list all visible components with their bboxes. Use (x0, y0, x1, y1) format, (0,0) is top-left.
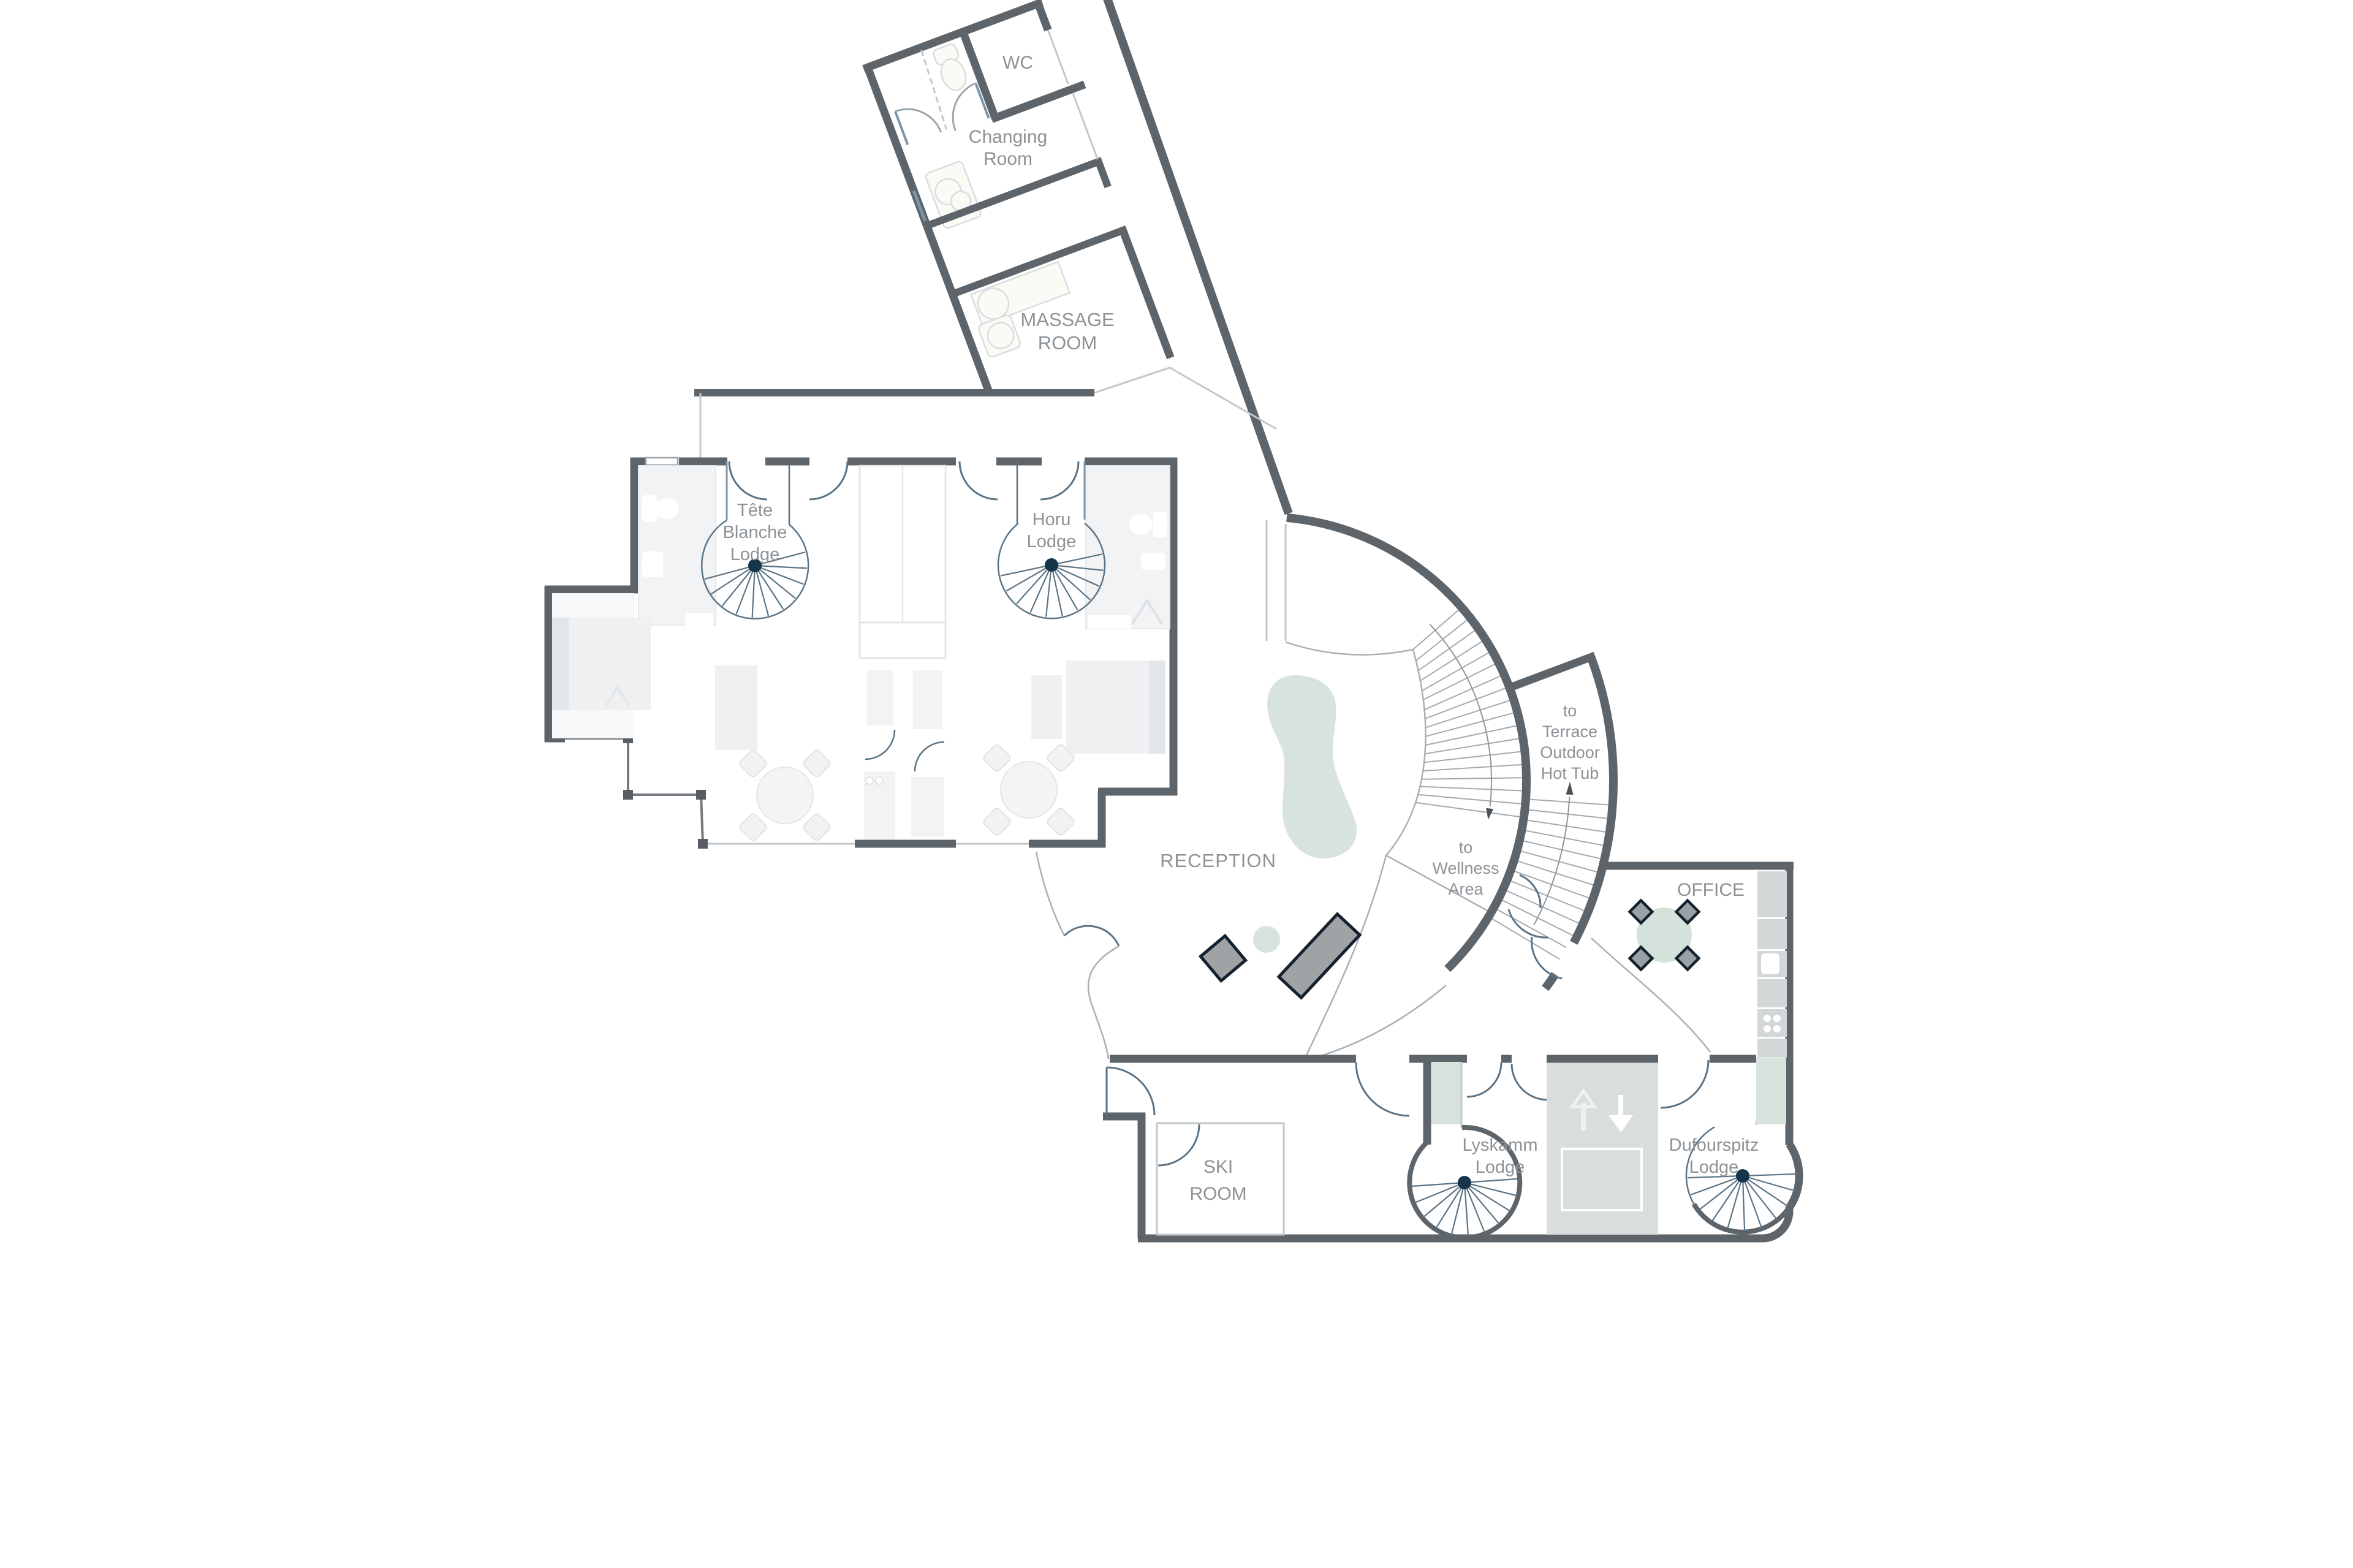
svg-text:Changing: Changing (969, 127, 1047, 147)
svg-text:Outdoor: Outdoor (1540, 743, 1600, 762)
svg-text:to: to (1563, 702, 1577, 720)
svg-text:Area: Area (1448, 880, 1483, 898)
svg-text:Tête: Tête (737, 501, 773, 520)
svg-text:Blanche: Blanche (723, 523, 787, 542)
svg-text:ROOM: ROOM (1038, 332, 1097, 354)
svg-text:Lodge: Lodge (1027, 532, 1077, 551)
svg-text:Room: Room (983, 149, 1033, 169)
svg-text:OFFICE: OFFICE (1677, 880, 1745, 900)
svg-text:Lodge: Lodge (1476, 1157, 1525, 1177)
svg-text:Horu: Horu (1033, 510, 1071, 529)
svg-text:WC: WC (1002, 53, 1033, 73)
svg-text:RECEPTION: RECEPTION (1160, 850, 1276, 871)
svg-text:to: to (1459, 838, 1473, 857)
svg-text:Lodge: Lodge (1689, 1157, 1739, 1177)
svg-text:ROOM: ROOM (1189, 1184, 1246, 1204)
svg-text:MASSAGE: MASSAGE (1020, 309, 1114, 330)
svg-text:Terrace: Terrace (1542, 722, 1597, 741)
svg-text:Lodge: Lodge (730, 545, 780, 564)
svg-text:SKI: SKI (1203, 1157, 1233, 1177)
svg-text:Dufourspitz: Dufourspitz (1669, 1135, 1759, 1155)
svg-text:Lyskamm: Lyskamm (1463, 1135, 1538, 1155)
svg-text:Hot Tub: Hot Tub (1541, 764, 1599, 782)
svg-text:Wellness: Wellness (1432, 859, 1499, 877)
